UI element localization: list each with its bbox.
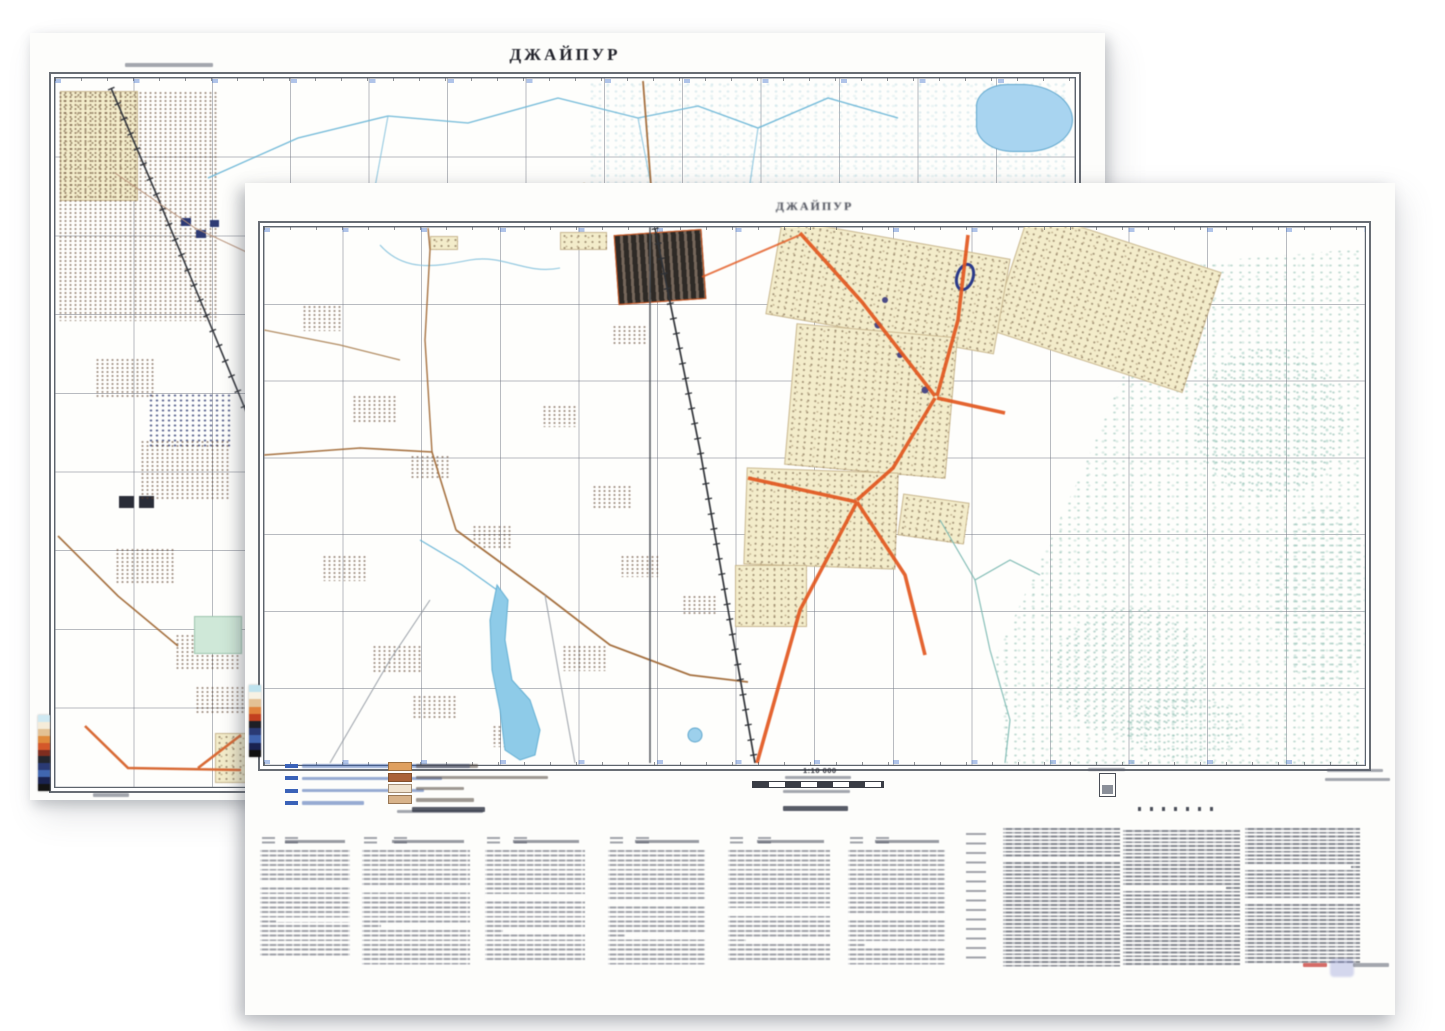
- scanned-map-canvas: ДЖАЙПУР: [0, 0, 1445, 1031]
- index-column-header: [485, 836, 585, 848]
- back-frame-tickmarks: [55, 78, 1075, 81]
- sheet-location-diagram: [1099, 773, 1116, 797]
- index-column-header: [362, 836, 470, 848]
- index-column-entries: [608, 850, 705, 966]
- color-calibration-bar-back: [38, 715, 50, 791]
- imprint-note-red: [1303, 963, 1327, 967]
- index-column-entries: [362, 850, 470, 966]
- index-column-entries: [728, 850, 830, 960]
- front-map-title: ДЖАЙПУР: [264, 199, 1365, 214]
- index-section-header: [412, 807, 485, 812]
- edition-note-2: [1325, 778, 1390, 781]
- description-text-block: [1123, 830, 1240, 965]
- index-column-entries: [848, 850, 945, 966]
- scale-subtitle: [785, 776, 851, 779]
- map-scale: 1:10 000: [803, 766, 837, 775]
- back-sheet-label: [93, 793, 129, 797]
- front-map-features: [264, 227, 1365, 765]
- index-column-entries: [485, 850, 585, 962]
- index-annotation-column: [966, 833, 996, 963]
- street-list-header: [783, 806, 848, 811]
- edition-note-1: [1327, 769, 1383, 772]
- sheet-diagram-caption: [1088, 768, 1125, 771]
- back-corner-note-1: [125, 63, 213, 67]
- index-column-header: [848, 836, 945, 848]
- index-column-header: [608, 836, 705, 848]
- description-text-block: [1245, 828, 1360, 965]
- legend-item: [388, 797, 648, 803]
- map-sheet-front: ДЖАЙПУР: [245, 183, 1395, 1015]
- library-stamp: [1330, 959, 1354, 977]
- description-text-block: [1003, 828, 1120, 968]
- front-map-frame: [258, 221, 1371, 771]
- back-map-title: ДЖАЙПУР: [55, 45, 1075, 65]
- scale-bar: [752, 781, 884, 788]
- imprint-note-gray: [1353, 963, 1389, 967]
- front-map-content: [264, 227, 1365, 765]
- index-column-entries: [260, 850, 350, 958]
- security-marks-row: [1138, 807, 1213, 811]
- front-frame-tickmarks: [264, 227, 1365, 230]
- legend-item: [388, 774, 648, 780]
- contour-interval-note: [783, 790, 850, 793]
- index-column-header: [728, 836, 830, 848]
- legend-item: [388, 763, 648, 769]
- legend-item: [388, 786, 648, 792]
- index-column-header: [260, 836, 350, 848]
- color-calibration-bar-front: [249, 685, 261, 757]
- front-map-linework: [264, 227, 1361, 765]
